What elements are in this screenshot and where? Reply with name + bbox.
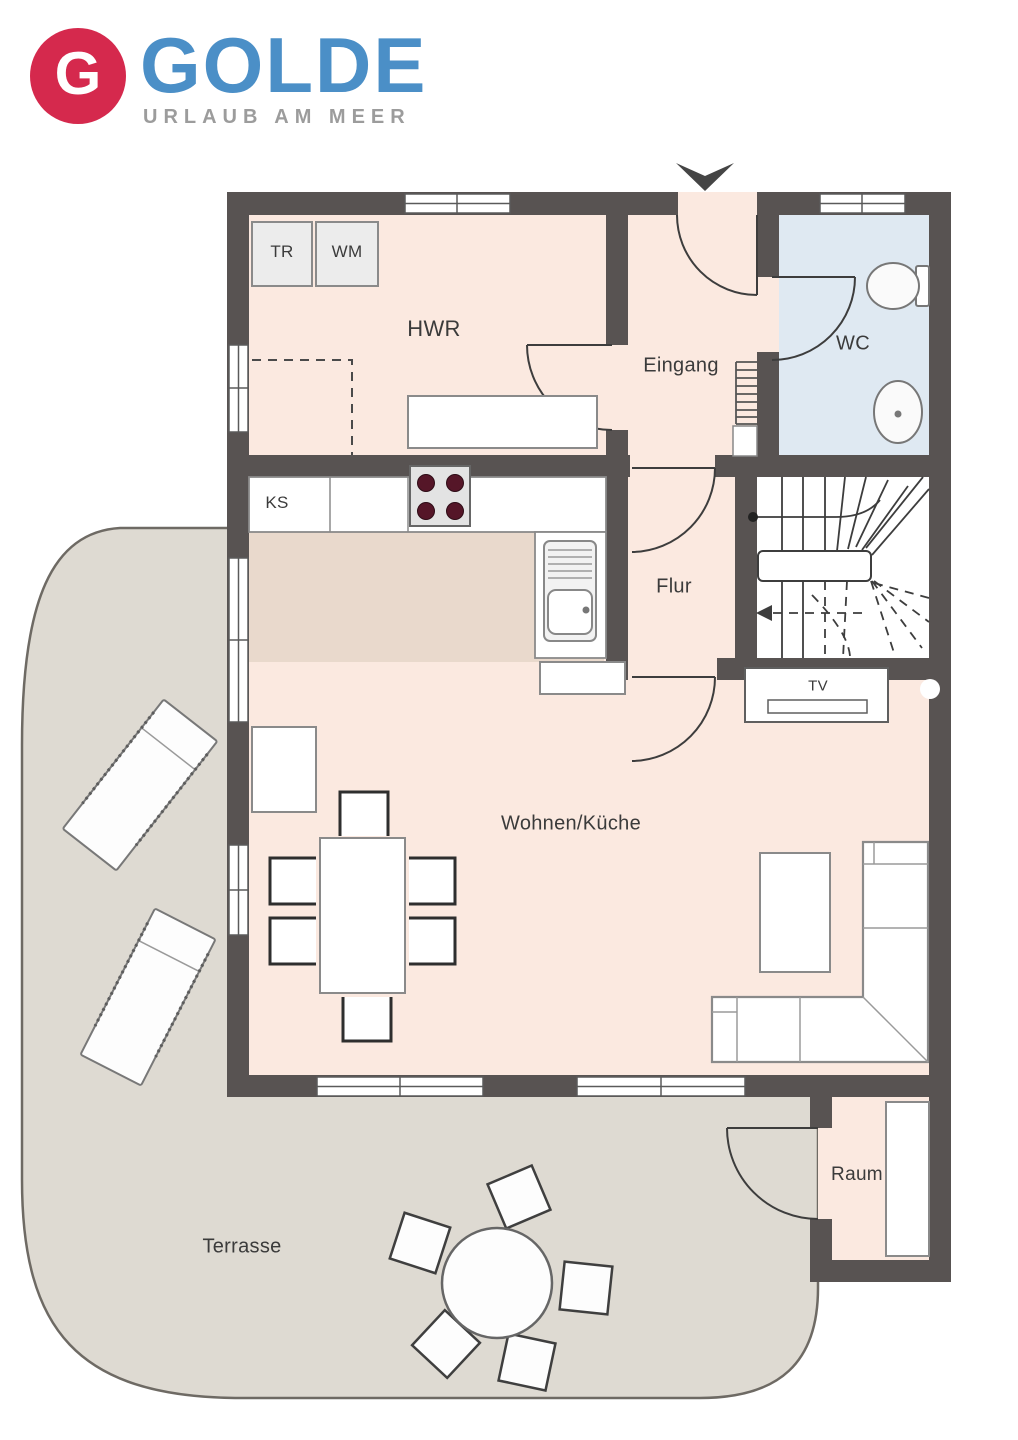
- label-tv: TV: [808, 678, 828, 695]
- stove-icon: [410, 466, 470, 526]
- wc-sink-icon: [874, 381, 922, 443]
- label-wc: WC: [836, 333, 870, 356]
- label-hwr: HWR: [407, 316, 460, 342]
- label-washer: WM: [332, 242, 363, 262]
- label-raum: Raum: [831, 1164, 883, 1186]
- hall-shelf: [733, 426, 757, 456]
- wc-toilet-icon: [867, 263, 929, 309]
- kitchen-island: [540, 662, 625, 694]
- dining-chair: [270, 918, 316, 964]
- label-terrasse: Terrasse: [202, 1236, 281, 1259]
- label-eingang: Eingang: [643, 355, 719, 378]
- dining-chair: [343, 997, 391, 1041]
- label-wohnen: Wohnen/Küche: [501, 813, 641, 836]
- dining-chair: [270, 858, 316, 904]
- coffee-table: [760, 853, 830, 972]
- wardrobe: [886, 1102, 929, 1256]
- kitchen-sink-icon: [535, 532, 606, 658]
- window: [405, 194, 510, 213]
- dining-table: [320, 838, 405, 993]
- sideboard: [252, 727, 316, 812]
- window: [820, 194, 905, 213]
- outdoor-table: [442, 1228, 552, 1338]
- window: [577, 1077, 745, 1096]
- window: [229, 345, 248, 432]
- wall-post: [920, 679, 940, 699]
- dining-chair: [409, 858, 455, 904]
- label-flur: Flur: [656, 576, 692, 599]
- laundry-counter: [408, 396, 597, 448]
- outdoor-chair: [499, 1334, 556, 1391]
- floor-plan-page: G GOLDE URLAUB AM MEER: [0, 0, 1018, 1440]
- label-dryer: TR: [270, 242, 293, 262]
- tv-cabinet: [745, 668, 888, 722]
- label-fridge: KS: [265, 493, 288, 513]
- window: [229, 558, 248, 722]
- entrance-arrow-icon: [676, 163, 734, 191]
- entrance-opening: [678, 192, 757, 215]
- floor-plan-drawing: [0, 0, 1018, 1440]
- outdoor-chair: [560, 1262, 613, 1315]
- dining-chair: [340, 792, 388, 836]
- dining-chair: [409, 918, 455, 964]
- window: [317, 1077, 483, 1096]
- window: [229, 845, 248, 935]
